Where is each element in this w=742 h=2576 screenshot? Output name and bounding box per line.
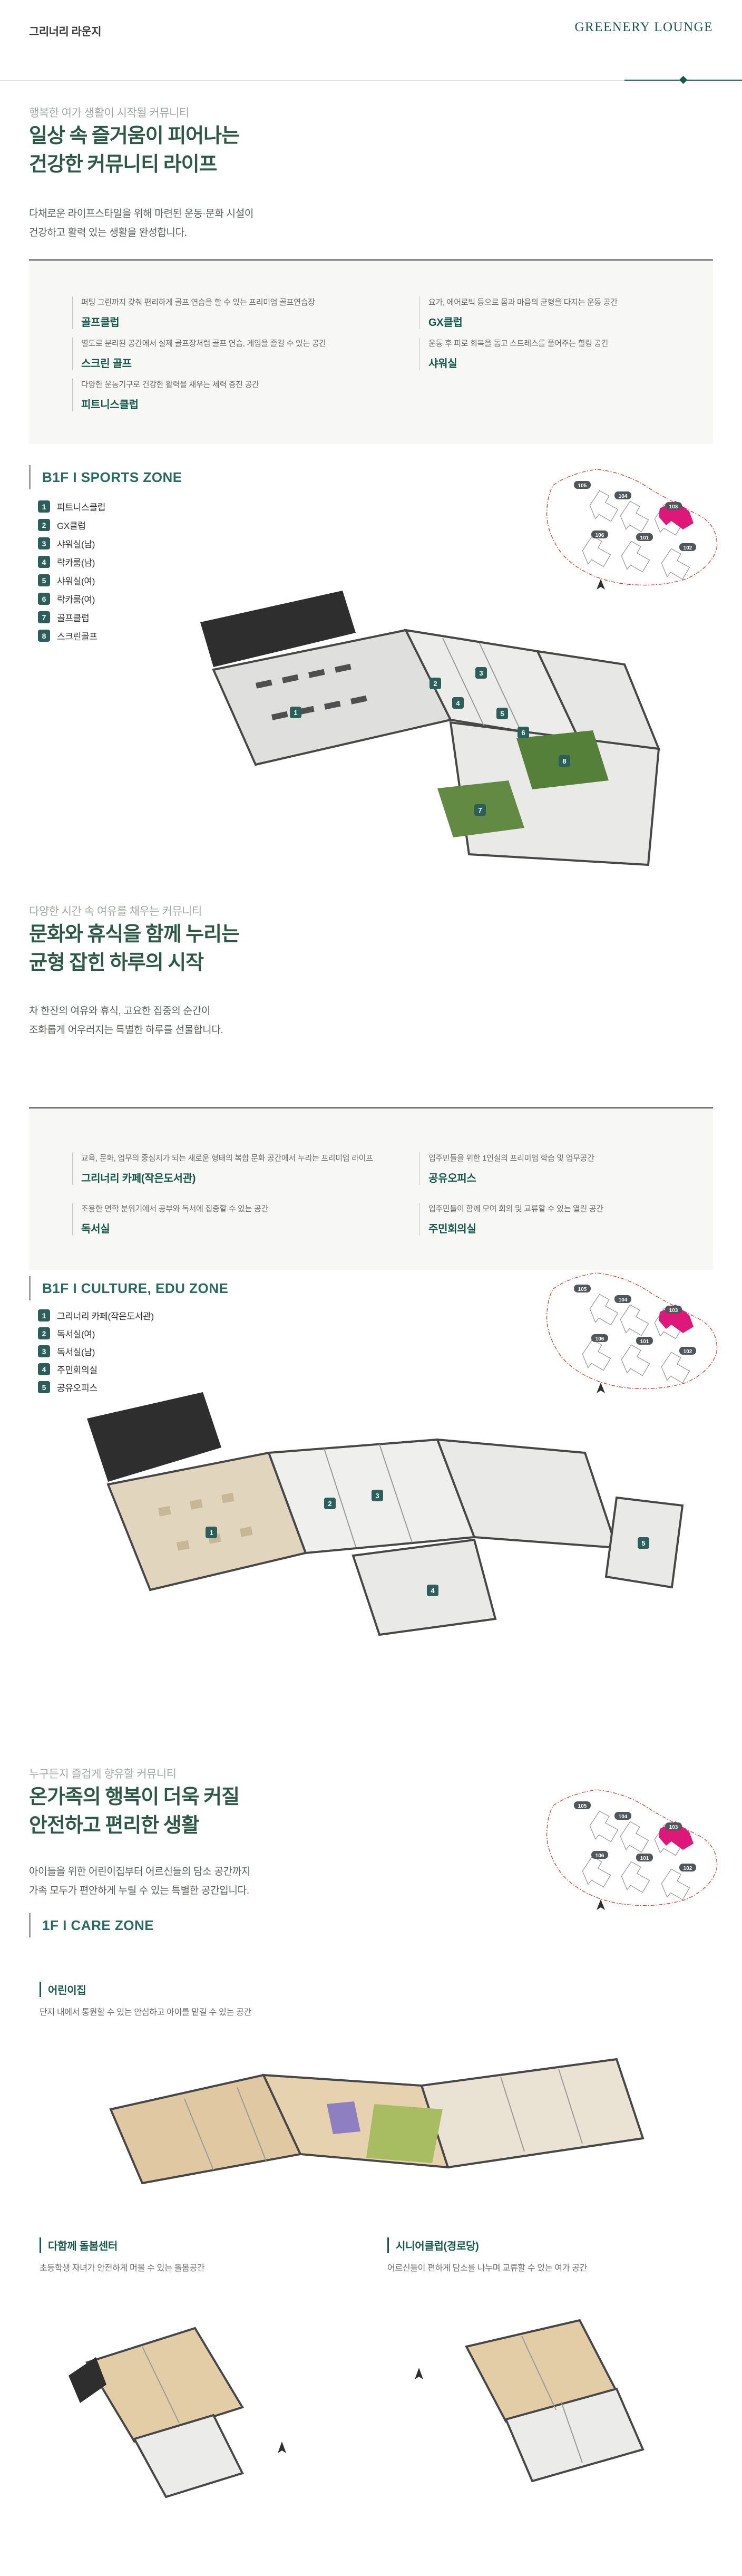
legend-number-badge: 5 (38, 1381, 50, 1393)
zone-label-text: 1F I CARE ZONE (42, 1917, 154, 1934)
plan-badge: 3 (375, 1492, 379, 1500)
building-label: 106 (595, 1853, 604, 1859)
legend-label: 골프클럽 (57, 611, 89, 624)
sports-floor-plan: 1 2 3 4 5 6 7 8 (121, 559, 669, 960)
care-center-floor-plan (37, 2283, 321, 2536)
building-label: 105 (578, 483, 587, 489)
section1-eyebrow: 행복한 여가 생활이 시작될 커뮤니티 (29, 104, 189, 120)
building-label: 101 (640, 1339, 649, 1345)
legend-item: 1피트니스클럽 (38, 500, 105, 513)
section2-desc: 차 한잔의 여유와 휴식, 고요한 집중의 순간이 조화롭게 어우러지는 특별한… (29, 1002, 223, 1040)
building-label: 103 (669, 1308, 678, 1314)
section2-facility-panel (29, 1107, 713, 1270)
plan-badge: 2 (328, 1500, 331, 1508)
legend-label: 독서실(남) (57, 1345, 95, 1358)
plan-badge: 4 (456, 699, 460, 707)
section1-desc-line1: 다채로운 라이프스타일을 위해 마련된 운동·문화 시설이 (29, 205, 253, 224)
legend-label: GX클럽 (57, 518, 86, 532)
section2-eyebrow: 다양한 시간 속 여유를 채우는 커뮤니티 (29, 903, 202, 919)
culture-floor-plan: 1 2 3 4 5 (58, 1379, 711, 1727)
facility-title: 주민회의실 (428, 1220, 603, 1236)
building-label: 105 (578, 1287, 587, 1292)
legend-label: 독서실(여) (57, 1327, 95, 1340)
daycare-title: 어린이집 (40, 1982, 86, 1997)
plan-badge: 8 (562, 757, 566, 765)
facility-screen-golf: 별도로 분리된 공간에서 실제 골프장처럼 골프 연습, 게임을 즐길 수 있는… (72, 337, 326, 370)
section2-desc-line1: 차 한잔의 여유와 휴식, 고요한 집중의 순간이 (29, 1002, 223, 1021)
legend-label: 락카룸(남) (57, 555, 95, 568)
legend-label: 주민회의실 (57, 1363, 97, 1376)
senior-club-floor-plan (387, 2283, 704, 2536)
building-outline-106 (580, 1854, 612, 1890)
page-title-en: GREENERY LOUNGE (574, 20, 713, 35)
facility-reading-room: 조용한 면학 분위기에서 공부와 독서에 집중할 수 있는 공간 독서실 (72, 1203, 268, 1236)
care-center-desc: 초등학생 자녀가 안전하게 머물 수 있는 돌봄공간 (40, 2261, 204, 2273)
zone-label-culture: B1F I CULTURE, EDU ZONE (29, 1276, 228, 1300)
building-label: 102 (684, 545, 692, 551)
legend-item: 1그리너리 카페(작은도서관) (38, 1309, 154, 1322)
section1-desc-line2: 건강하고 활력 있는 생활을 완성합니다. (29, 224, 253, 243)
section2-title-line2: 균형 잡힌 하루의 시작 (29, 949, 239, 978)
building-outline-101 (619, 1343, 651, 1379)
legend-number-badge: 8 (38, 630, 50, 642)
plan-badge: 5 (500, 710, 504, 718)
building-outline-102 (659, 1867, 691, 1903)
building-outline-104 (618, 499, 650, 535)
legend-item: 5샤워실(여) (38, 574, 95, 587)
building-outline-101 (619, 1859, 651, 1896)
section3-desc: 아이들을 위한 어린이집부터 어르신들의 담소 공간까지 가족 모두가 편안하게… (29, 1863, 250, 1900)
section3-desc-line2: 가족 모두가 편안하게 누릴 수 있는 특별한 공간입니다. (29, 1882, 250, 1900)
daycare-floor-plan (79, 2025, 659, 2236)
legend-number-badge: 6 (38, 593, 50, 605)
facility-desc: 요가, 에어로빅 등으로 몸과 마음의 균형을 다지는 운동 공간 (428, 296, 618, 307)
legend-item: 3독서실(남) (38, 1345, 95, 1358)
legend-item: 6락카룸(여) (38, 592, 95, 605)
plan-badge: 3 (479, 669, 483, 677)
north-arrow-icon (597, 1899, 605, 1910)
north-arrow-icon (278, 2442, 286, 2453)
legend-item: 4주민회의실 (38, 1363, 97, 1376)
zone-label-text: B1F I SPORTS ZONE (42, 469, 182, 486)
page-title-ko: 그리너리 라운지 (29, 23, 101, 39)
legend-label: 스크린골프 (57, 629, 97, 642)
plan-badge: 4 (431, 1587, 435, 1595)
zone-label-bar (29, 1276, 31, 1300)
plan-badge: 2 (433, 680, 437, 688)
senior-club-desc: 어르신들이 편하게 담소를 나누며 교류할 수 있는 여가 공간 (387, 2261, 587, 2273)
facility-desc: 조용한 면학 분위기에서 공부와 독서에 집중할 수 있는 공간 (81, 1203, 268, 1214)
legend-number-badge: 2 (38, 519, 50, 531)
section1-title-line2: 건강한 커뮤니티 라이프 (29, 151, 239, 179)
legend-number-badge: 5 (38, 574, 50, 586)
building-outline-104 (618, 1303, 650, 1339)
section1-title: 일상 속 즐거움이 피어나는 건강한 커뮤니티 라이프 (29, 122, 239, 179)
section2-title-line1: 문화와 휴식을 함께 누리는 (29, 921, 239, 949)
zone-label-sports: B1F I SPORTS ZONE (29, 465, 182, 489)
facility-title: 골프클럽 (81, 314, 315, 329)
building-label: 101 (640, 535, 649, 541)
section2-desc-line2: 조화롭게 어우러지는 특별한 하루를 선물합니다. (29, 1021, 223, 1040)
plan-badge: 7 (478, 806, 482, 814)
facility-desc: 운동 후 피로 회복을 돕고 스트레스를 풀어주는 힐링 공간 (428, 337, 608, 349)
facility-desc: 입주민들이 함께 모여 회의 및 교류할 수 있는 열린 공간 (428, 1203, 603, 1214)
building-label: 104 (619, 1814, 628, 1820)
header-diamond-marker (679, 76, 688, 84)
legend-number-badge: 4 (38, 556, 50, 568)
building-label: 106 (595, 1336, 604, 1342)
facility-desc: 교육, 문화, 업무의 중심지가 되는 새로운 형태의 복합 문화 공간에서 누… (81, 1152, 373, 1163)
building-label: 101 (640, 1856, 649, 1861)
building-label: 106 (595, 533, 604, 538)
section1-title-line1: 일상 속 즐거움이 피어나는 (29, 122, 239, 151)
meeting-room-block (353, 1540, 495, 1635)
facility-title: 스크린 골프 (81, 355, 326, 370)
play-area (366, 2104, 443, 2163)
legend-item: 7골프클럽 (38, 611, 89, 624)
zone-label-bar (29, 465, 31, 489)
building-label: 103 (669, 504, 678, 510)
section3-desc-line1: 아이들을 위한 어린이집부터 어르신들의 담소 공간까지 (29, 1863, 250, 1882)
legend-item: 2독서실(여) (38, 1327, 95, 1340)
care-center-title: 다함께 돌봄센터 (40, 2237, 118, 2253)
building-label: 102 (684, 1866, 692, 1871)
legend-item: 2GX클럽 (38, 518, 86, 532)
legend-number-badge: 7 (38, 611, 50, 623)
site-boundary (547, 1790, 717, 1906)
site-boundary (547, 1273, 717, 1389)
legend-label: 피트니스클럽 (57, 500, 105, 513)
legend-number-badge: 2 (38, 1327, 50, 1339)
building-label: 104 (619, 1297, 628, 1303)
facility-title: 피트니스클럽 (81, 396, 259, 411)
facility-desc: 별도로 분리된 공간에서 실제 골프장처럼 골프 연습, 게임을 즐길 수 있는… (81, 337, 326, 349)
legend-item: 8스크린골프 (38, 629, 97, 642)
facility-greenery-cafe: 교육, 문화, 업무의 중심지가 되는 새로운 형태의 복합 문화 공간에서 누… (72, 1152, 373, 1185)
building-label: 104 (619, 494, 628, 499)
facility-residents-meeting-room: 입주민들이 함께 모여 회의 및 교류할 수 있는 열린 공간 주민회의실 (419, 1203, 603, 1236)
facility-golf-club: 퍼팅 그린까지 갖춰 편리하게 골프 연습을 할 수 있는 프리미엄 골프연습장… (72, 296, 315, 329)
building-label: 103 (669, 1825, 678, 1830)
facility-fitness-club: 다양한 운동기구로 건강한 활력을 채우는 체력 증진 공간 피트니스클럽 (72, 379, 259, 411)
daycare-right-wing (422, 2059, 643, 2167)
facility-title: 독서실 (81, 1220, 268, 1236)
facility-gx-club: 요가, 에어로빅 등으로 몸과 마음의 균형을 다지는 운동 공간 GX클럽 (419, 296, 618, 329)
facility-desc: 다양한 운동기구로 건강한 활력을 채우는 체력 증진 공간 (81, 379, 259, 390)
facility-title: GX클럽 (428, 314, 618, 329)
legend-number-badge: 1 (38, 500, 50, 513)
plan-badge: 5 (641, 1539, 645, 1547)
facility-title: 그리너리 카페(작은도서관) (81, 1170, 373, 1185)
zone-label-bar (29, 1913, 31, 1937)
legend-item: 4락카룸(남) (38, 555, 95, 568)
legend-number-badge: 1 (38, 1309, 50, 1321)
building-outline-106 (580, 1337, 612, 1374)
facility-desc: 입주민들을 위한 1인실의 프리미엄 학습 및 업무공간 (428, 1152, 594, 1163)
facility-title: 샤워실 (428, 355, 608, 370)
legend-number-badge: 3 (38, 537, 50, 549)
greenery-lounge-page: 그리너리 라운지 GREENERY LOUNGE 행복한 여가 생활이 시작될 … (0, 0, 742, 2576)
legend-number-badge: 4 (38, 1363, 50, 1375)
legend-label: 샤워실(남) (57, 537, 95, 550)
north-arrow-icon (415, 2368, 423, 2379)
zone-label-text: B1F I CULTURE, EDU ZONE (42, 1280, 228, 1297)
section2-title: 문화와 휴식을 함께 누리는 균형 잡힌 하루의 시작 (29, 921, 239, 978)
plan-badge: 1 (294, 709, 297, 717)
facility-shower-room: 운동 후 피로 회복을 돕고 스트레스를 풀어주는 힐링 공간 샤워실 (419, 337, 608, 370)
section1-desc: 다채로운 라이프스타일을 위해 마련된 운동·문화 시설이 건강하고 활력 있는… (29, 205, 253, 243)
facility-title: 공유오피스 (428, 1170, 594, 1185)
senior-club-title: 시니어클럽(경로당) (387, 2237, 479, 2253)
plan-badge: 1 (209, 1529, 213, 1537)
section3-title-line2: 안전하고 편리한 생활 (29, 1812, 239, 1840)
legend-number-badge: 3 (38, 1345, 50, 1357)
zone-label-care: 1F I CARE ZONE (29, 1913, 154, 1937)
legend-item: 3샤워실(남) (38, 537, 95, 550)
building-label: 102 (684, 1349, 692, 1355)
legend-label: 락카룸(여) (57, 592, 95, 605)
building-outline-104 (618, 1819, 650, 1856)
facility-shared-office: 입주민들을 위한 1인실의 프리미엄 학습 및 업무공간 공유오피스 (419, 1152, 594, 1185)
plan-badge: 6 (521, 729, 525, 737)
section3-eyebrow: 누구든지 즐겁게 향유할 커뮤니티 (29, 1765, 176, 1781)
legend-label: 그리너리 카페(작은도서관) (57, 1309, 154, 1322)
section3-title-line1: 온가족의 행복이 더욱 커질 (29, 1783, 239, 1812)
building-label: 105 (578, 1803, 587, 1809)
legend-label: 샤워실(여) (57, 574, 95, 587)
site-map-care: 105 104 103 106 101 102 (538, 1780, 733, 1912)
facility-desc: 퍼팅 그린까지 갖춰 편리하게 골프 연습을 할 수 있는 프리미엄 골프연습장 (81, 296, 315, 307)
site-map-culture: 105 104 103 106 101 102 (538, 1263, 733, 1395)
daycare-desc: 단지 내에서 통원할 수 있는 안심하고 아이를 맡길 수 있는 공간 (40, 2005, 251, 2018)
section3-title: 온가족의 행복이 더욱 커질 안전하고 편리한 생활 (29, 1783, 239, 1840)
